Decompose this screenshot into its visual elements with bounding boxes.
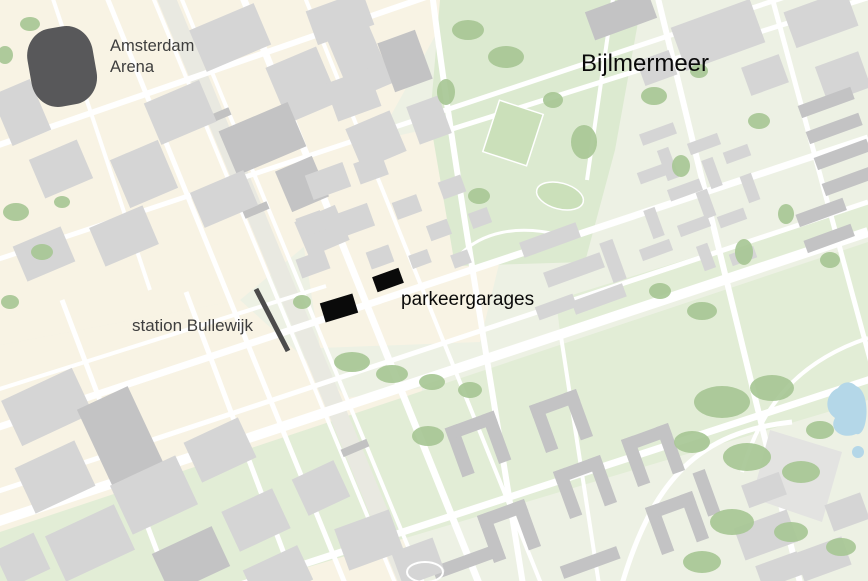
- arena-label-line2: Arena: [110, 57, 194, 78]
- arena-label: Amsterdam Arena: [110, 36, 194, 78]
- water-features: [827, 382, 866, 458]
- station-label: station Bullewijk: [132, 316, 253, 336]
- arena-label-line1: Amsterdam: [110, 36, 194, 57]
- garages-label: parkeergarages: [401, 289, 534, 311]
- district-label: Bijlmermeer: [581, 50, 709, 78]
- map-stage: Amsterdam Arena Bijlmermeer parkeergarag…: [0, 0, 868, 581]
